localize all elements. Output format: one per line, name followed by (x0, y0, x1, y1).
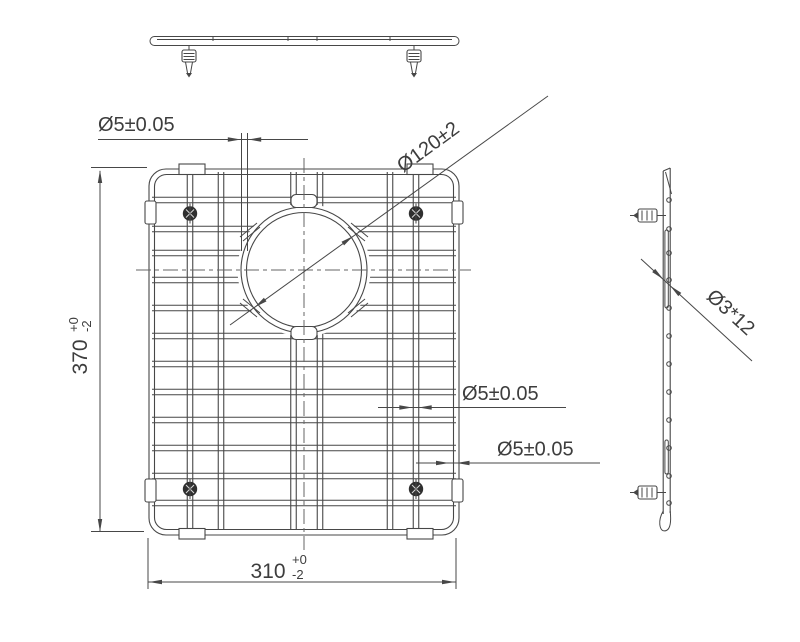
dim-height-value: 370 (69, 339, 92, 374)
dim-width-tol-minus: -2 (292, 567, 304, 582)
front-view (136, 158, 471, 550)
dim-width: 310 +0 -2 (148, 538, 456, 589)
dim-frame-wire: Ø5±0.05 (416, 439, 600, 466)
side-view-clip-bottom (630, 486, 666, 499)
frame-tab-top-left (179, 164, 205, 175)
frame-tab-bottom-right (407, 529, 433, 540)
clip-bottom-right (452, 479, 463, 502)
side-view-bottom-hook (660, 511, 671, 531)
clip-top-left (145, 201, 156, 224)
technical-drawing: Ø5±0.05 Ø120±2 370 +0 -2 Ø5±0.05 Ø5±0. (0, 0, 800, 642)
side-view: Ø3*12 (630, 168, 759, 531)
dim-height-tol-minus: -2 (79, 320, 94, 332)
frame-tab-bottom-left (179, 529, 205, 540)
screw-head (183, 479, 197, 499)
dim-height: 370 +0 -2 (66, 168, 147, 533)
dim-width-tol-plus: +0 (292, 552, 307, 567)
dim-frame-wire-label: Ø5±0.05 (497, 439, 574, 461)
dim-ring-wire-label: Ø5±0.05 (98, 114, 175, 136)
screw-head (183, 204, 197, 224)
top-view (150, 37, 459, 78)
clip-bottom-left (145, 479, 156, 502)
dim-mid-wire-label: Ø5±0.05 (462, 383, 539, 405)
clip-top-right (452, 201, 463, 224)
dim-width-value: 310 (250, 560, 285, 583)
top-view-foot-left (182, 46, 196, 78)
dim-side-wires-label: Ø3*12 (702, 285, 759, 340)
side-view-clip-top (630, 209, 666, 222)
screw-head (409, 204, 423, 224)
dim-mid-wire: Ø5±0.05 (378, 383, 566, 410)
top-view-bar (150, 37, 459, 46)
screw-head (409, 479, 423, 499)
top-view-foot-right (407, 46, 421, 78)
drawing-canvas: Ø5±0.05 Ø120±2 370 +0 -2 Ø5±0.05 Ø5±0. (0, 0, 800, 642)
dim-side-wires: Ø3*12 (641, 259, 759, 361)
